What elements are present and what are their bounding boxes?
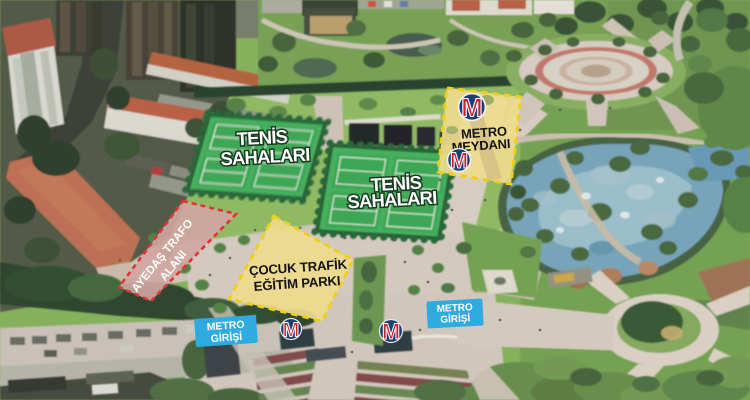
svg-text:M: M — [382, 319, 400, 344]
svg-text:GİRİŞİ: GİRİŞİ — [210, 330, 242, 345]
svg-text:M: M — [283, 319, 300, 341]
svg-text:M: M — [461, 93, 483, 123]
svg-text:M: M — [450, 148, 468, 173]
